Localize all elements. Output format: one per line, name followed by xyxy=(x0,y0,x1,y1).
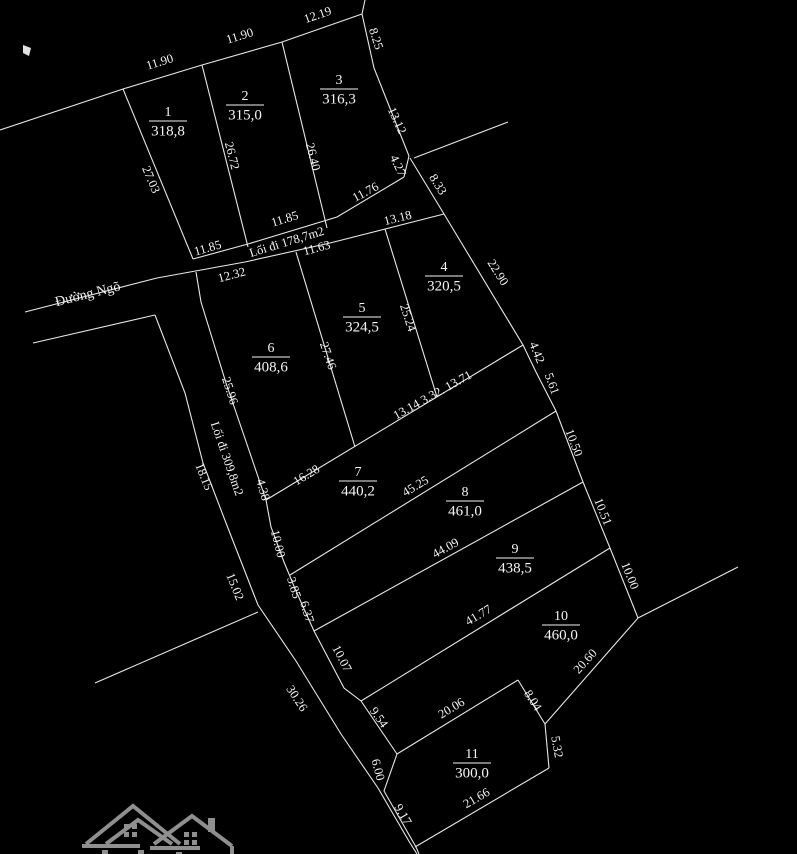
houses-logo-icon xyxy=(80,798,250,854)
plot-area: 300,0 xyxy=(455,765,489,781)
plot-number: 6 xyxy=(268,341,275,356)
plot-number: 8 xyxy=(462,485,469,500)
plot-number: 5 xyxy=(359,301,366,316)
cadastral-map: 11.9011.9012.198.2527.0326.7226.4013.124… xyxy=(0,0,797,854)
plot-number: 3 xyxy=(336,73,343,88)
plot-area: 324,5 xyxy=(345,319,379,335)
plot-number: 4 xyxy=(441,260,448,275)
plot-area: 316,3 xyxy=(322,91,356,107)
plot-area: 438,5 xyxy=(498,560,532,576)
plot-area: 440,2 xyxy=(341,483,375,499)
plot-area: 460,0 xyxy=(544,627,578,643)
plot-number: 7 xyxy=(355,465,362,480)
cadastral-map-page: 11.9011.9012.198.2527.0326.7226.4013.124… xyxy=(0,0,797,854)
plot-number: 2 xyxy=(242,89,249,104)
plot-area: 408,6 xyxy=(254,359,288,375)
plot-number: 1 xyxy=(165,105,172,120)
plot-area: 320,5 xyxy=(427,278,461,294)
plot-number: 10 xyxy=(554,609,568,624)
plot-number: 11 xyxy=(465,747,478,762)
plot-number: 9 xyxy=(512,542,519,557)
plot-area: 461,0 xyxy=(448,503,482,519)
plot-area: 318,8 xyxy=(151,123,185,139)
plot-area: 315,0 xyxy=(228,107,262,123)
